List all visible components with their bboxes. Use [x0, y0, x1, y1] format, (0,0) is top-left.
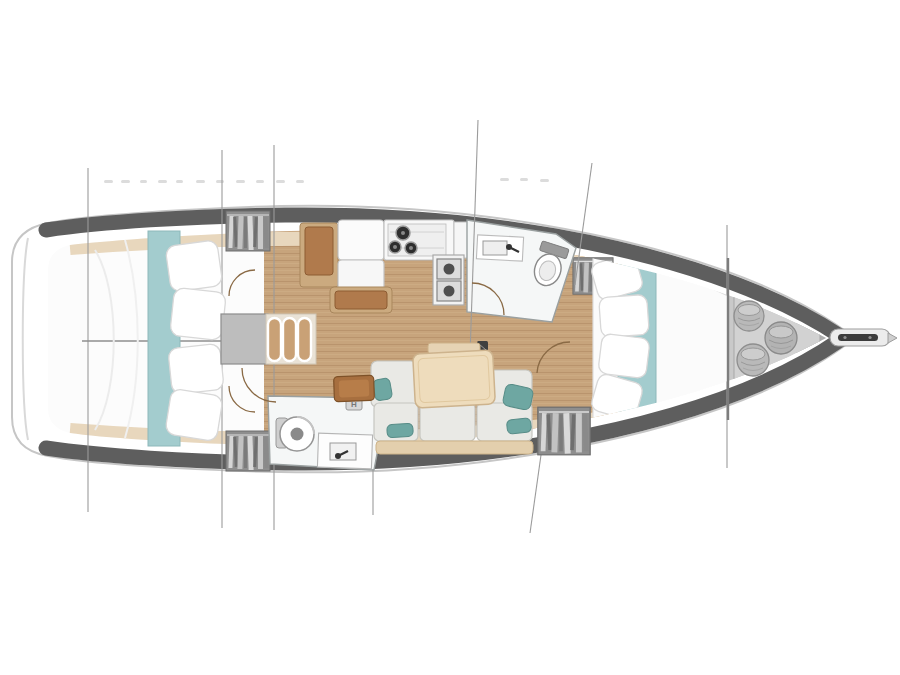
pillow [165, 388, 224, 442]
deck-hatch-dashes [104, 178, 549, 183]
companionway-step [268, 318, 281, 361]
floor-plan-svg: H [0, 0, 900, 675]
washbasin [483, 241, 507, 255]
coffee-table [334, 375, 375, 401]
rope-coil [734, 301, 764, 331]
pillow [599, 294, 650, 337]
bowsprit-anchor-roller [830, 329, 897, 346]
dining-table [413, 350, 496, 408]
hanging-locker-icon [226, 431, 270, 471]
companionway [221, 314, 316, 364]
engine-box [221, 314, 268, 364]
galley-cabinet [338, 220, 384, 260]
hanging-locker-icon [226, 211, 270, 251]
rope-coil [765, 322, 797, 354]
rope-coil [737, 344, 769, 376]
rig-line-lower [530, 455, 541, 533]
pillow [165, 240, 223, 293]
stove-burners [388, 224, 446, 256]
teal-pillow [506, 418, 531, 434]
washbasin [330, 443, 356, 460]
nav-bench-cushion [305, 227, 333, 275]
companionway-step [298, 318, 311, 361]
sofa-cushion [420, 403, 475, 441]
companionway-step [283, 318, 296, 361]
pillow [168, 343, 225, 394]
hanging-locker-icon [538, 407, 590, 455]
sofa-base-trim [376, 441, 533, 454]
low-table-top [335, 291, 387, 309]
galley-sinks [433, 255, 464, 305]
yacht-floor-plan-canvas: H [0, 0, 900, 675]
teal-pillow [387, 423, 414, 438]
pillow [598, 333, 651, 379]
head-aft: H [268, 396, 382, 470]
pillow [170, 287, 227, 340]
teal-pillow [372, 378, 392, 402]
